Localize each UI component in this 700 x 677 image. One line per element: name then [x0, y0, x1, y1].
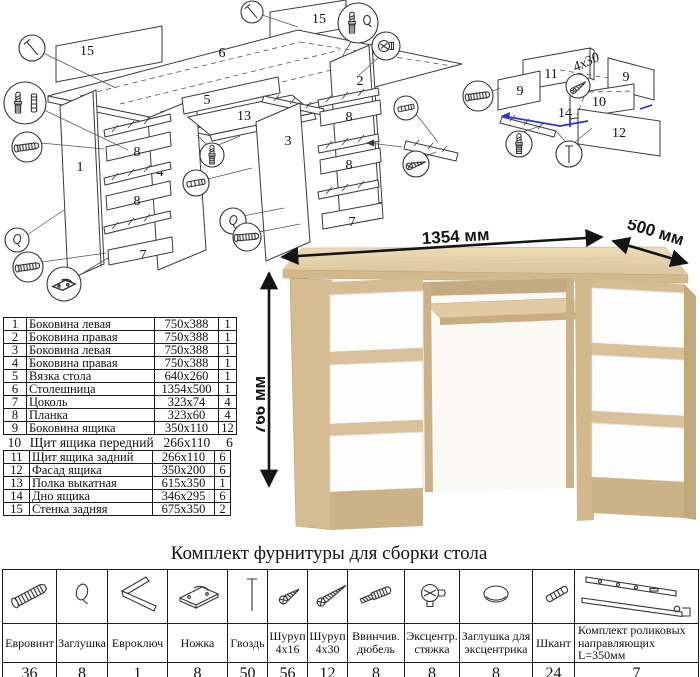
drawer-front[interactable]: [592, 355, 684, 416]
table-row: 2Боковина правая750x3881: [4, 331, 237, 344]
part-num: 3: [4, 344, 27, 357]
part-qty: 1: [215, 477, 231, 490]
hardware-name: Комплект роликовых направляющих L=350мм: [575, 624, 699, 663]
part-qty: 4: [219, 409, 237, 422]
height-dimension: 766 мм: [256, 376, 269, 434]
part-name: Столешница: [27, 383, 155, 396]
opening-right-wall: [566, 278, 574, 488]
part-label-1: 1: [77, 160, 84, 175]
part-size: 346x295: [153, 490, 215, 503]
part-num: 13: [4, 477, 30, 490]
part-size: 323x74: [155, 396, 219, 409]
callout-euroscrew-4: [463, 81, 493, 111]
drawer-front[interactable]: [330, 361, 423, 424]
callout-dowelscrew-mid: [200, 143, 224, 167]
screw-in-dowel-icon: [352, 570, 400, 618]
table-row: 11Щит ящика задний266x1106: [4, 451, 231, 464]
hardware-names-row: Евровинт Заглушка Евроключ Ножка Гвоздь …: [3, 624, 699, 663]
hardware-cell: [57, 570, 108, 624]
screw-in-dowel-icon: [349, 12, 356, 33]
hardware-name: Ножка: [168, 624, 228, 663]
part-label-6: 6: [219, 46, 226, 61]
parts-table-top: 1Боковина левая750x3881 2Боковина правая…: [3, 317, 237, 435]
part-name: Боковина правая: [27, 357, 155, 370]
part-label-8b: 8: [134, 194, 141, 209]
part-size: 615x350: [153, 477, 215, 490]
part-label-5: 5: [204, 93, 211, 108]
wood-dowel-icon: [31, 94, 36, 112]
part-name: Щит ящика задний: [30, 451, 153, 464]
hardware-cell: [533, 570, 575, 624]
cam-lock-icon: [408, 570, 456, 618]
part-num: 12: [4, 464, 30, 477]
hardware-qty: 8: [57, 662, 108, 677]
part-label-13: 13: [237, 109, 251, 124]
hardware-cell: [460, 570, 533, 624]
hardware-name: Заглушка: [57, 624, 108, 663]
part-qty: 4: [219, 396, 237, 409]
table-row: 8Планка323x604: [4, 409, 237, 422]
desk-render: 1354 мм 500 мм 766 мм: [256, 220, 700, 544]
depth-dimension: 500 мм: [625, 220, 686, 249]
part-label-15-right: 15: [312, 12, 326, 27]
table-row: 3Боковина левая750x3881: [4, 344, 237, 357]
roller-slide-icon: [578, 571, 696, 617]
callout-screw-right: [403, 151, 429, 177]
left-side-panel: [290, 278, 334, 530]
screw-in-dowel-icon: [516, 134, 522, 154]
hardware-cell: [108, 570, 168, 624]
hardware-name: Заглушка для эксцентрика: [460, 624, 533, 663]
right-side-face: [684, 284, 696, 520]
hardware-name: Эксцентр. стяжка: [405, 624, 460, 663]
callout-nail: [19, 35, 45, 61]
hardware-table: Евровинт Заглушка Евроключ Ножка Гвоздь …: [2, 569, 699, 677]
part-name: Полка выкатная: [30, 477, 153, 490]
part-num: 5: [4, 370, 27, 383]
drawer-front[interactable]: [592, 423, 684, 482]
table-row: 1Боковина левая750x3881: [4, 318, 237, 331]
part-size: 323x60: [155, 409, 219, 422]
callout-euroscrew-2: [13, 252, 43, 282]
part-size: 1354x500: [155, 383, 219, 396]
part-size: 266x110: [154, 435, 220, 451]
callout-dowel-pair: [4, 82, 46, 124]
hardware-cell: [405, 570, 460, 624]
part-size: 350x110: [155, 422, 219, 435]
right-pedestal-left-strip: [575, 279, 594, 521]
part-qty: 6: [220, 435, 239, 451]
hardware-name: Шуруп 4x30: [308, 624, 348, 663]
table-row: 15Стенка задняя675x3502: [4, 503, 231, 516]
part-size: 350x200: [153, 464, 215, 477]
callout-nail-top: [241, 1, 263, 23]
table-row: 12Фасад ящика350x2006: [4, 464, 231, 477]
part-qty: 1: [219, 370, 237, 383]
cam-cap-icon: [472, 570, 520, 618]
part-name: Фасад ящика: [30, 464, 153, 477]
part-name: Планка: [27, 409, 155, 422]
part-num: 15: [4, 503, 30, 516]
hardware-icons-row: [3, 570, 699, 624]
hardware-qty: 8: [460, 662, 533, 677]
part-label-8a: 8: [134, 145, 141, 160]
part-size: 640x260: [155, 370, 219, 383]
drawer-front[interactable]: [330, 432, 423, 492]
part-qty: 1: [219, 357, 237, 370]
hardware-qty: 50: [228, 662, 268, 677]
hardware-qty-row: 36 8 1 8 50 56 12 8 8 8 24 7: [3, 662, 699, 677]
part-name: Боковина левая: [27, 344, 155, 357]
part-label-14: 14: [558, 106, 572, 121]
hardware-cell: [575, 570, 699, 624]
part-label-8d: 8: [346, 158, 353, 173]
part-size: 750x388: [155, 344, 219, 357]
part-size: 750x388: [155, 331, 219, 344]
table-row: 13Полка выкатная615x3501: [4, 477, 231, 490]
part-name: Дно ящика: [30, 490, 153, 503]
part-label-10: 10: [592, 95, 606, 110]
part-label-7a: 7: [140, 248, 147, 263]
callout-euroscrew-1: [12, 132, 42, 162]
part-size: 750x388: [155, 357, 219, 370]
hardware-qty: 8: [405, 662, 460, 677]
part-name: Боковина ящика: [27, 422, 155, 435]
table-row: 9Боковина ящика350x11012: [4, 422, 237, 435]
cam-lock-icon: [379, 41, 394, 52]
part-name: Щит ящика передний: [26, 435, 154, 451]
hardware-cell: [308, 570, 348, 624]
callout-cap-1: [5, 228, 29, 252]
callout-foot: [47, 267, 81, 301]
screw-long-icon: [308, 570, 356, 618]
part-num: 7: [4, 396, 27, 409]
left-plinth: [330, 488, 423, 530]
hex-key-icon: [114, 570, 162, 618]
part-num: 9: [4, 422, 27, 435]
hardware-name: Шкант: [533, 624, 575, 663]
hardware-name: Шуруп 4x16: [268, 624, 308, 663]
euro-screw-icon: [6, 570, 54, 618]
assembly-instruction-sheet: 15 15 6 4 8 8 7: [0, 0, 700, 677]
hardware-name: Евроключ: [108, 624, 168, 663]
part-name: Стенка задняя: [30, 503, 153, 516]
hardware-cell: [3, 570, 57, 624]
part-label-11: 11: [544, 67, 557, 82]
part-qty: 2: [215, 503, 231, 516]
desk-body: [283, 247, 696, 530]
hardware-qty: 36: [3, 662, 57, 677]
screw-in-dowel-icon: [15, 92, 22, 113]
hardware-name: Гвоздь: [228, 624, 268, 663]
cap-icon: [58, 570, 106, 618]
part-size: 675x350: [153, 503, 215, 516]
callout-dowel-pair-2: [338, 3, 378, 43]
foot-icon: [174, 570, 222, 618]
hardware-cell: [228, 570, 268, 624]
callout-cam: [372, 32, 400, 60]
table-row: 14Дно ящика346x2956: [4, 490, 231, 503]
part-qty: 6: [215, 451, 231, 464]
right-plinth: [592, 477, 684, 518]
part-label-8c: 8: [346, 110, 353, 125]
part-name: Вязка стола: [27, 370, 155, 383]
hardware-qty: 24: [533, 662, 575, 677]
table-row: 6Столешница1354x5001: [4, 383, 237, 396]
drawer-front[interactable]: [330, 291, 423, 352]
hardware-qty: 7: [575, 662, 699, 677]
part-name: Боковина левая: [27, 318, 155, 331]
table-row: 4Боковина правая750x3881: [4, 357, 237, 370]
part-label-15-left: 15: [80, 44, 94, 59]
table-row: 5Вязка стола640x2601: [4, 370, 237, 383]
hardware-qty: 8: [168, 662, 228, 677]
part-num: 1: [4, 318, 27, 331]
part-qty: 1: [219, 331, 237, 344]
wood-dowel-icon: [533, 570, 581, 618]
hardware-name: Ввинчив. дюбель: [348, 624, 405, 663]
hardware-cell: [348, 570, 405, 624]
parts-list: 1Боковина левая750x3881 2Боковина правая…: [3, 317, 239, 516]
part-num: 6: [4, 383, 27, 396]
part-qty: 6: [215, 490, 231, 503]
drawer-front[interactable]: [592, 288, 684, 348]
table-row-unboxed: 10 Щит ящика передний 266x110 6: [3, 435, 239, 450]
part-qty: 12: [219, 422, 237, 435]
callout-dowel-right: [394, 96, 418, 120]
hardware-qty: 8: [348, 662, 405, 677]
hardware-qty: 12: [308, 662, 348, 677]
screw-in-dowel-icon: [209, 145, 215, 164]
parts-table-bottom: 11Щит ящика задний266x1106 12Фасад ящика…: [3, 450, 231, 516]
part-qty: 1: [219, 318, 237, 331]
part-size: 750x388: [155, 318, 219, 331]
callout-nail-drawer: [556, 141, 582, 167]
part-num: 14: [4, 490, 30, 503]
hardware-qty: 1: [108, 662, 168, 677]
part-label-9b: 9: [623, 70, 630, 85]
hardware-cell: [268, 570, 308, 624]
part-label-9a: 9: [517, 84, 524, 99]
part-qty: 1: [219, 344, 237, 357]
part-num: 2: [4, 331, 27, 344]
part-name: Цоколь: [27, 396, 155, 409]
part-num: 10: [3, 435, 26, 451]
table-row: 7Цоколь323x744: [4, 396, 237, 409]
hardware-cell: [168, 570, 228, 624]
hardware-qty: 56: [268, 662, 308, 677]
callout-dowel-mid: [183, 170, 209, 196]
part-num: 11: [4, 451, 30, 464]
part-num: 4: [4, 357, 27, 370]
part-name: Боковина правая: [27, 331, 155, 344]
hardware-name: Евровинт: [3, 624, 57, 663]
hardware-kit-title: Комплект фурнитуры для сборки стола: [0, 543, 658, 565]
part-label-12: 12: [612, 126, 626, 141]
part-size: 266x110: [153, 451, 215, 464]
part-num: 8: [4, 409, 27, 422]
part-qty: 1: [219, 383, 237, 396]
part-qty: 6: [215, 464, 231, 477]
part-label-3: 3: [285, 134, 292, 149]
callout-screw-4x30: [566, 74, 590, 98]
callout-dowelscrew-drawer: [506, 131, 532, 157]
